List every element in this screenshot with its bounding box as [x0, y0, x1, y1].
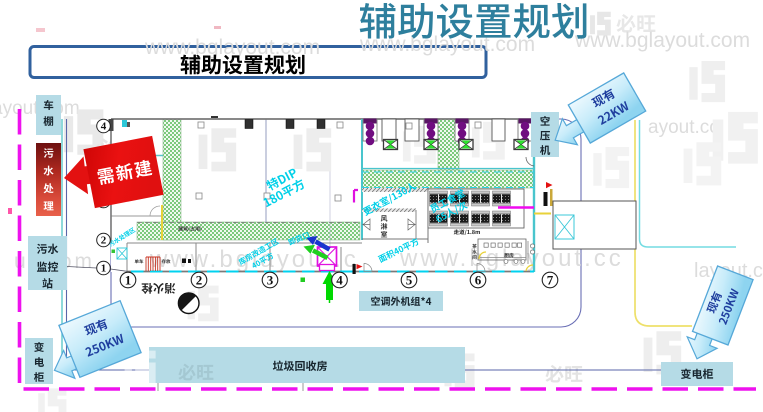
svg-text:7: 7 [547, 273, 554, 288]
svg-text:1: 1 [125, 273, 132, 288]
svg-text:www.bglayout.com: www.bglayout.com [574, 29, 750, 52]
svg-text:2: 2 [196, 273, 203, 288]
svg-text:3: 3 [267, 273, 274, 288]
svg-text:ayout.co: ayout.co [648, 117, 720, 138]
svg-text:5: 5 [406, 273, 413, 288]
svg-text:4: 4 [336, 273, 343, 288]
svg-text:4: 4 [101, 121, 107, 133]
svg-text:1: 1 [101, 263, 107, 275]
svg-text:2: 2 [101, 235, 107, 247]
svg-text:6: 6 [475, 273, 482, 288]
